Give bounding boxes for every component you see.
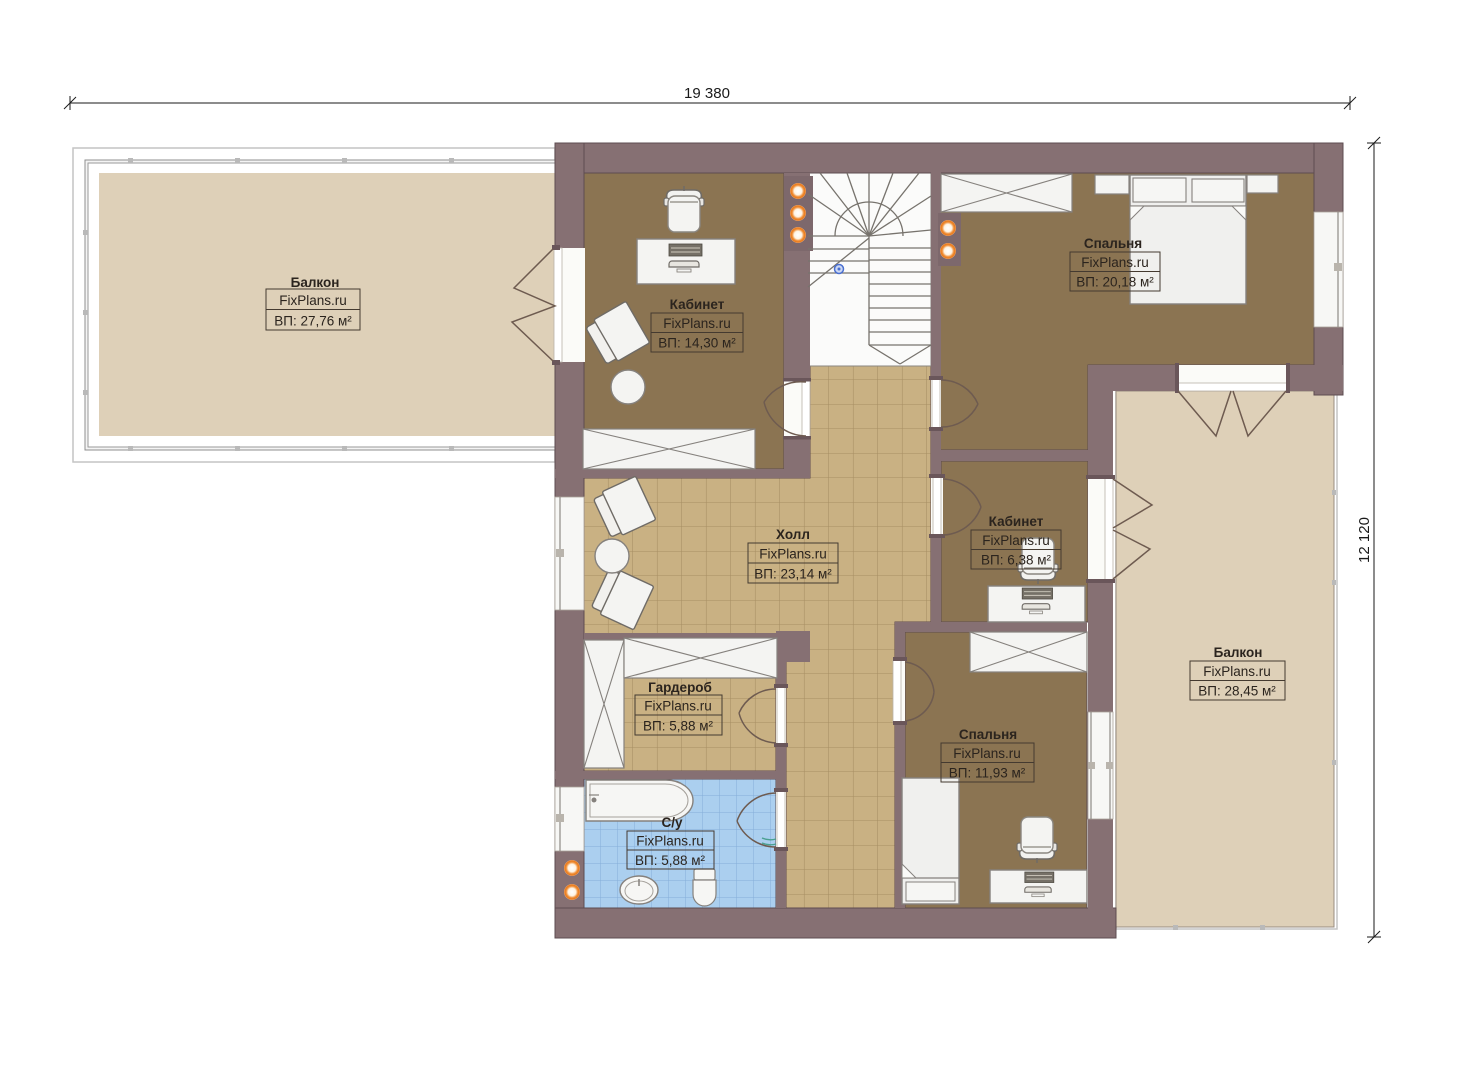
svg-text:Спальня: Спальня (959, 727, 1017, 742)
svg-text:Балкон: Балкон (291, 275, 340, 290)
svg-text:Гардероб: Гардероб (648, 680, 712, 695)
svg-text:Холл: Холл (776, 527, 810, 542)
svg-text:FixPlans.ru: FixPlans.ru (982, 533, 1050, 548)
svg-text:FixPlans.ru: FixPlans.ru (759, 547, 827, 562)
svg-text:С/у: С/у (661, 815, 683, 830)
svg-text:Спальня: Спальня (1084, 236, 1142, 251)
svg-text:ВП: 11,93 м²: ВП: 11,93 м² (949, 766, 1026, 781)
svg-text:Балкон: Балкон (1214, 645, 1263, 660)
svg-text:ВП: 6,38 м²: ВП: 6,38 м² (981, 553, 1052, 568)
svg-text:FixPlans.ru: FixPlans.ru (644, 699, 712, 714)
svg-text:ВП: 5,88 м²: ВП: 5,88 м² (643, 719, 714, 734)
svg-text:FixPlans.ru: FixPlans.ru (953, 746, 1021, 761)
svg-text:FixPlans.ru: FixPlans.ru (636, 834, 704, 849)
svg-text:FixPlans.ru: FixPlans.ru (663, 316, 731, 331)
svg-text:12 120: 12 120 (1356, 517, 1373, 563)
svg-text:FixPlans.ru: FixPlans.ru (1203, 664, 1271, 679)
svg-text:ВП: 14,30 м²: ВП: 14,30 м² (658, 336, 736, 351)
svg-text:ВП: 5,88 м²: ВП: 5,88 м² (635, 853, 706, 868)
svg-text:FixPlans.ru: FixPlans.ru (279, 293, 347, 308)
svg-text:FixPlans.ru: FixPlans.ru (1081, 255, 1149, 270)
svg-text:Кабинет: Кабинет (989, 514, 1044, 529)
svg-text:ВП: 20,18 м²: ВП: 20,18 м² (1076, 275, 1154, 290)
svg-text:Кабинет: Кабинет (670, 297, 725, 312)
svg-text:ВП: 27,76 м²: ВП: 27,76 м² (274, 314, 352, 329)
svg-text:19 380: 19 380 (684, 85, 730, 102)
svg-text:ВП: 23,14 м²: ВП: 23,14 м² (754, 567, 832, 582)
svg-text:ВП: 28,45 м²: ВП: 28,45 м² (1198, 684, 1276, 699)
